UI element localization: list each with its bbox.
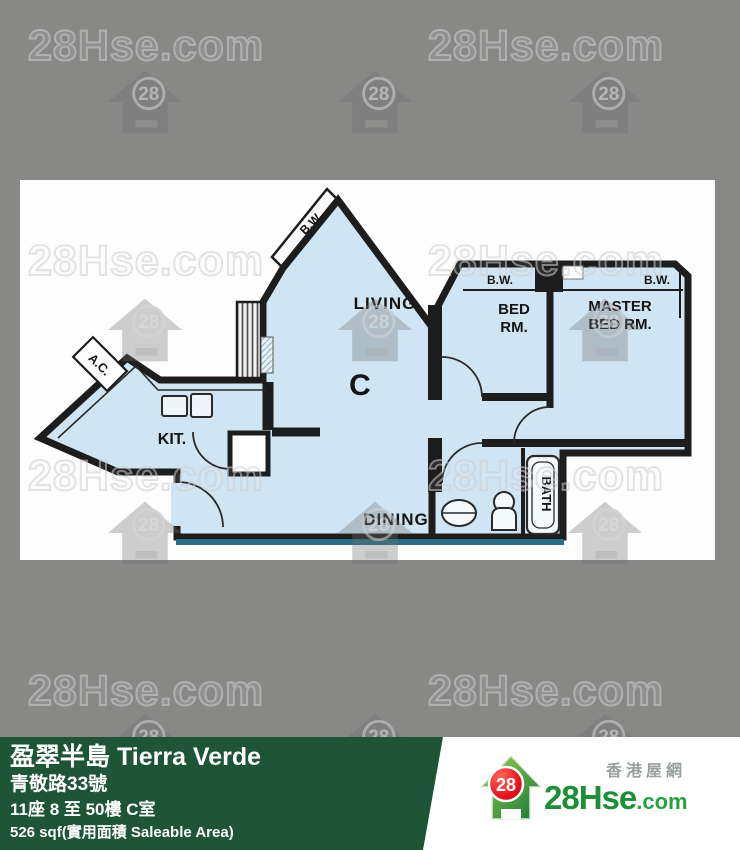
property-title: 盈翠半島 Tierra Verde (10, 742, 450, 772)
bottom-shadow-line (176, 539, 564, 545)
property-area: 526 sqf(實用面積 Saleable Area) (10, 822, 450, 843)
bath-label: BATH (539, 476, 554, 511)
logo-badge-number: 28 (496, 775, 516, 795)
site-logo: 28 香港屋網 28Hse.com (450, 737, 740, 850)
louver-window (237, 302, 261, 378)
kitchen-sink (162, 396, 187, 416)
dining-label: DINING (363, 510, 429, 529)
brand-suffix: .com (636, 789, 687, 814)
logo-house-icon: 28 (480, 753, 542, 837)
small-window (261, 337, 273, 373)
brand-name: 28Hse (544, 779, 636, 816)
entrance-doorway-gap (171, 483, 182, 526)
band-notch (563, 266, 583, 279)
floorplan-page: 28 A.C. (0, 0, 740, 850)
master-label-line1: MASTER (588, 298, 652, 315)
bay-window-label-master: B.W. (644, 273, 670, 287)
band-pillar (535, 262, 563, 292)
living-label: LIVING (354, 294, 417, 313)
unit-letter: C (349, 369, 371, 402)
bay-window-label-bed: B.W. (487, 273, 513, 287)
entry-cabinet (230, 433, 268, 474)
brand-wordmark: 28Hse.com (544, 779, 688, 817)
basin-pedestal (492, 508, 516, 530)
bedroom-label-line2: RM. (500, 319, 528, 336)
kitchen-stove (191, 394, 212, 417)
bottom-strip: 盈翠半島 Tierra Verde 青敬路33號 11座 8 至 50樓 C室 … (0, 737, 740, 850)
property-block-floor-unit: 11座 8 至 50樓 C室 (10, 798, 450, 822)
floorplan-canvas: A.C. (20, 180, 715, 560)
property-address: 青敬路33號 (10, 772, 450, 798)
property-info-bar: 盈翠半島 Tierra Verde 青敬路33號 11座 8 至 50樓 C室 … (0, 737, 450, 850)
kitchen-label: KIT. (158, 431, 186, 448)
site-name-chinese: 香港屋網 (606, 757, 686, 781)
master-label-line2: BED RM. (588, 316, 651, 333)
logo-house-door (501, 809, 521, 819)
bedroom-label-line1: BED (498, 301, 530, 318)
floorplan-drawing: A.C. (20, 180, 715, 560)
